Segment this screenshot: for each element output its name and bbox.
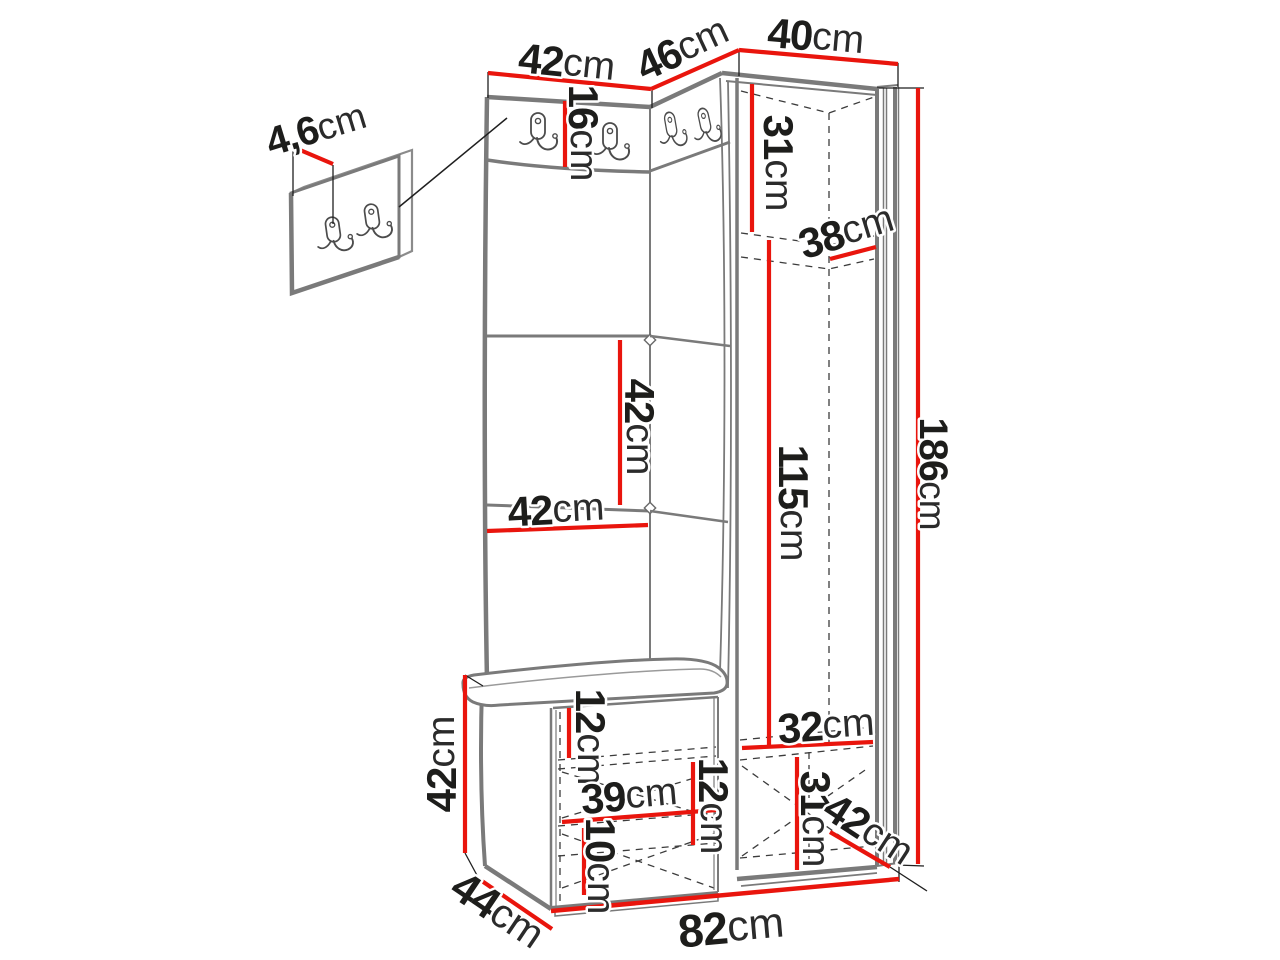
dimension-label-left-panel-width: 42cm <box>516 34 617 91</box>
dimension-label-hook-rail-height: 16cm <box>561 85 608 182</box>
dimension-label-wardrobe-bottom-inner-width: 32cm <box>776 698 876 752</box>
callout-line <box>399 118 507 207</box>
dimension-label-wardrobe-top-section-height: 31cm <box>756 115 803 212</box>
dimension-label-bench-bottom-section-height: 10cm <box>578 818 625 915</box>
wardrobe-bottom-edge <box>737 867 877 879</box>
wall-hook-panel <box>291 150 412 293</box>
dimension-label-bench-height: 42cm <box>418 716 465 813</box>
coat-hook-icon <box>656 110 688 149</box>
dimension-label-wall-panel-thickness: 4,6cm <box>261 93 372 165</box>
corner-panel-divider <box>650 511 728 522</box>
wall-panel-front-face <box>291 156 399 293</box>
dimension-label-bench-middle-section-height: 12cm <box>691 758 738 855</box>
coat-hook-icon <box>689 106 722 145</box>
furniture-dimension-diagram: 4,6cm42cm46cm40cm16cm31cm38cm42cm42cm115… <box>0 0 1280 960</box>
dimension-label-bench-top-section-height: 12cm <box>568 689 615 786</box>
corner-panel-divider <box>650 336 730 346</box>
dimension-label-wardrobe-hanging-height: 115cm <box>771 445 818 562</box>
left-panel-left-edge <box>485 97 487 681</box>
corner-panel-curve-edge <box>728 82 731 688</box>
hook-rail <box>520 106 723 160</box>
corner-panel-rail-edge <box>650 142 730 171</box>
coat-hook-icon <box>520 113 557 149</box>
bench-left-edge <box>481 686 485 866</box>
dimension-label-wardrobe-width: 40cm <box>766 8 867 63</box>
door-top-edge <box>877 85 898 87</box>
dimension-label-panel-tile-height: 42cm <box>617 379 664 476</box>
dimension-label-total-height: 186cm <box>911 417 955 530</box>
hidden-edge <box>741 91 829 113</box>
wardrobe-top-edge <box>722 73 877 89</box>
hidden-edge <box>829 97 874 113</box>
dimension-label-total-width: 82cm <box>676 896 786 957</box>
corner-panel-curve-edge <box>720 78 725 672</box>
dimension-label-panel-tile-width: 42cm <box>506 483 605 535</box>
